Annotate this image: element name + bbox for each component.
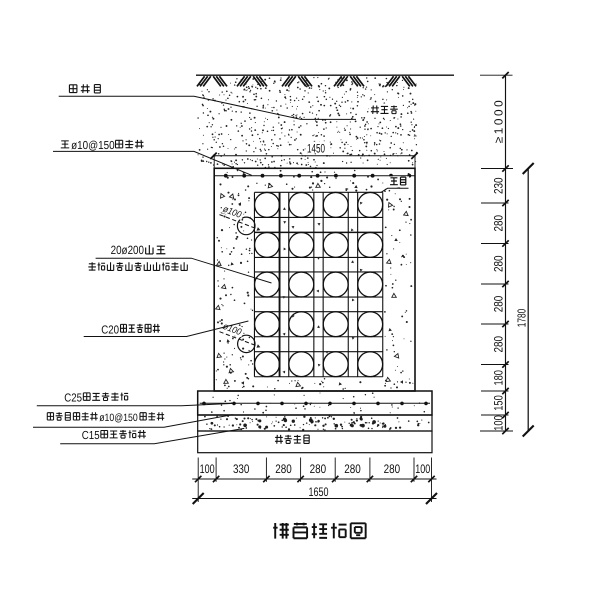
svg-text:280: 280 [492, 296, 506, 313]
svg-text:280: 280 [384, 462, 401, 476]
svg-text:20ø200: 20ø200 [111, 243, 145, 257]
svg-text:330: 330 [233, 462, 250, 476]
svg-text:ø10@150: ø10@150 [99, 412, 138, 424]
svg-text:280: 280 [310, 462, 327, 476]
svg-text:280: 280 [492, 255, 506, 272]
svg-text:100: 100 [492, 415, 506, 431]
svg-text:230: 230 [492, 177, 506, 194]
svg-text:C25: C25 [64, 392, 82, 405]
svg-text:280: 280 [275, 462, 292, 476]
svg-text:280: 280 [492, 336, 506, 353]
svg-text:280: 280 [344, 462, 361, 476]
svg-text:150: 150 [492, 395, 506, 411]
svg-text:280: 280 [492, 215, 506, 232]
svg-text:1650: 1650 [309, 485, 329, 499]
svg-text:1780: 1780 [516, 309, 529, 328]
svg-text:180: 180 [492, 370, 506, 386]
svg-text:100: 100 [415, 462, 430, 476]
svg-text:100: 100 [200, 462, 215, 476]
svg-text:C15: C15 [82, 429, 100, 442]
svg-text:ø10@150: ø10@150 [71, 139, 115, 152]
svg-text:1450: 1450 [307, 141, 325, 155]
svg-text:C20: C20 [101, 323, 119, 336]
